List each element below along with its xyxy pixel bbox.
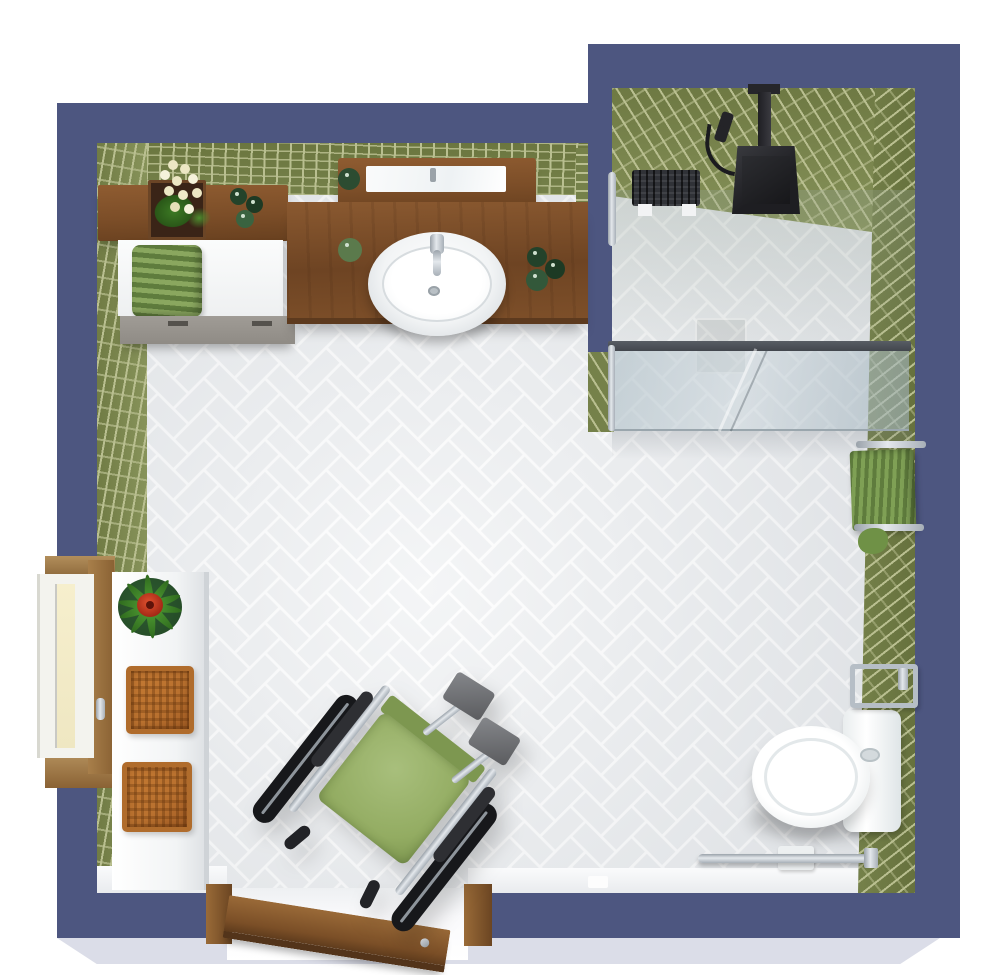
exterior-slab	[57, 938, 940, 964]
door-knob-icon	[420, 938, 430, 948]
wicker-basket	[126, 666, 194, 734]
wall-marker	[588, 876, 608, 888]
wicker-basket	[122, 762, 192, 832]
green-candle-icon	[338, 238, 362, 262]
wheelchair-caster	[282, 823, 313, 851]
soap-bottle-icon	[545, 259, 565, 279]
green-jar-icon	[230, 188, 247, 205]
shower-bench	[632, 170, 700, 206]
glass-partition-rail	[608, 341, 911, 351]
footrest-hanger	[422, 703, 463, 737]
wall-east	[915, 44, 960, 938]
wall-north-right	[588, 44, 960, 88]
glass-partition-post	[608, 345, 615, 431]
orchid-flowers	[168, 160, 178, 170]
towel-ring-mount	[898, 668, 908, 690]
washcloth	[858, 528, 888, 554]
toilet-grab-bar	[698, 854, 870, 863]
red-flower-icon	[137, 593, 163, 617]
soap-bottle-icon	[526, 269, 548, 291]
wheelchair-caster	[358, 878, 382, 910]
wall-west	[57, 103, 97, 938]
bench-foot	[682, 204, 696, 216]
faucet-spout	[433, 250, 441, 276]
window-handle	[96, 698, 105, 720]
soap-bottle-icon	[527, 247, 547, 267]
green-candle-icon	[338, 168, 360, 190]
flush-button	[860, 748, 880, 762]
glass-partition	[610, 351, 909, 431]
grab-bar-flange	[864, 848, 878, 868]
bench-foot	[638, 204, 652, 216]
floor-plan-render	[0, 0, 1000, 975]
wall-north-left	[57, 103, 590, 143]
faucet-reflection	[430, 168, 436, 182]
hanging-towels	[850, 449, 917, 531]
folded-towel	[132, 245, 202, 317]
wall-south-right	[468, 893, 915, 938]
window-pane	[55, 584, 75, 748]
mirror	[366, 166, 506, 192]
rainfall-shower-head	[732, 146, 800, 214]
wall-south-left	[57, 893, 227, 938]
towel-rack-bar	[856, 441, 926, 448]
toilet-bowl	[752, 726, 870, 828]
shower-grab-bar	[608, 172, 616, 246]
south-wall-inner-face-right	[468, 868, 858, 893]
cabinet-drawers	[120, 316, 295, 344]
green-jar-icon	[236, 210, 254, 228]
wheelchair	[283, 650, 507, 914]
